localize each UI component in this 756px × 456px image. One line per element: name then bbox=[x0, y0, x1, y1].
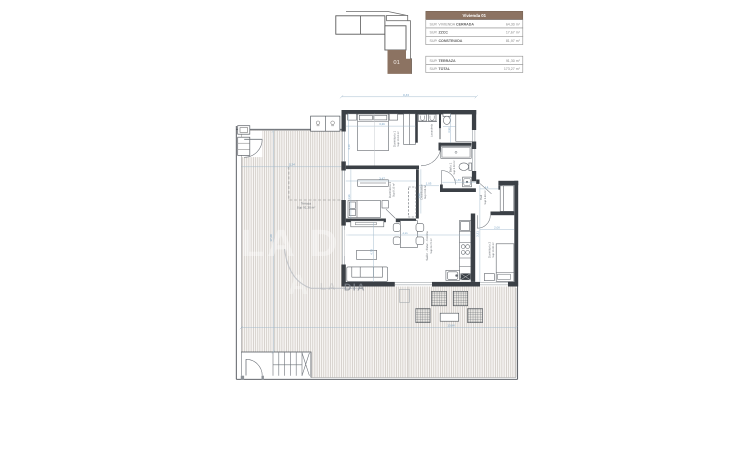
svg-text:4,78: 4,78 bbox=[369, 249, 373, 255]
svg-text:1,40: 1,40 bbox=[455, 178, 461, 182]
svg-text:17,67 m²: 17,67 m² bbox=[506, 31, 521, 35]
svg-text:173,27 m²: 173,27 m² bbox=[504, 67, 521, 71]
svg-text:A: A bbox=[288, 269, 310, 300]
svg-text:2,00: 2,00 bbox=[494, 225, 500, 229]
svg-text:LA: LA bbox=[320, 282, 337, 293]
svg-text:Salón - Estar - Cocina: Salón - Estar - Cocina bbox=[425, 231, 429, 261]
svg-text:13,94: 13,94 bbox=[447, 324, 455, 328]
svg-text:Sup 8.15 m²: Sup 8.15 m² bbox=[393, 183, 396, 197]
svg-text:8,43: 8,43 bbox=[403, 93, 409, 97]
svg-text:Sup 10.30 m²: Sup 10.30 m² bbox=[492, 242, 495, 258]
svg-text:1,4: 1,4 bbox=[485, 186, 489, 189]
svg-text:Sup 3.96 m²: Sup 3.96 m² bbox=[424, 185, 427, 199]
svg-text:3,47: 3,47 bbox=[379, 177, 385, 181]
svg-text:Sup 91.30 m²: Sup 91.30 m² bbox=[297, 206, 316, 210]
svg-text:Vivienda 01: Vivienda 01 bbox=[463, 13, 487, 18]
svg-text:4,16: 4,16 bbox=[402, 232, 408, 235]
svg-text:Sup 3.46 m²: Sup 3.46 m² bbox=[484, 190, 487, 204]
svg-text:64,30 m²: 64,30 m² bbox=[506, 22, 521, 26]
svg-text:DIA: DIA bbox=[344, 282, 366, 293]
svg-text:Lavandería: Lavandería bbox=[431, 123, 434, 137]
svg-text:5,34: 5,34 bbox=[289, 163, 295, 167]
svg-text:2,96: 2,96 bbox=[348, 194, 351, 200]
svg-text:Sup 10.16 m²: Sup 10.16 m² bbox=[397, 131, 400, 147]
svg-text:Hall: Hall bbox=[479, 195, 483, 201]
svg-text:3,26: 3,26 bbox=[379, 122, 385, 126]
svg-text:Dormitorio 2: Dormitorio 2 bbox=[487, 242, 491, 259]
svg-text:01: 01 bbox=[393, 59, 399, 66]
svg-text:3,21: 3,21 bbox=[476, 231, 480, 237]
svg-text:Sup 3.50 m²: Sup 3.50 m² bbox=[453, 160, 456, 174]
svg-text:SUP. VIVIENDA CERRADA: SUP. VIVIENDA CERRADA bbox=[430, 22, 475, 26]
svg-text:81,97 m²: 81,97 m² bbox=[506, 39, 521, 43]
svg-text:91,30 m²: 91,30 m² bbox=[506, 59, 521, 63]
svg-text:SUP. CONSTRUIDA: SUP. CONSTRUIDA bbox=[430, 39, 463, 43]
svg-text:Dormitorio 1: Dormitorio 1 bbox=[392, 131, 396, 148]
svg-text:SUP. ZZCC: SUP. ZZCC bbox=[430, 31, 449, 35]
svg-text:SUP. TERRAZA: SUP. TERRAZA bbox=[430, 59, 457, 63]
svg-text:Sup 24.70 m²: Sup 24.70 m² bbox=[430, 238, 433, 254]
svg-text:3,10: 3,10 bbox=[348, 144, 351, 150]
svg-text:Baño 1: Baño 1 bbox=[448, 162, 452, 172]
svg-text:Dormitorio 3: Dormitorio 3 bbox=[388, 182, 392, 199]
svg-text:LA DI: LA DI bbox=[241, 223, 354, 265]
svg-text:SUP. TOTAL: SUP. TOTAL bbox=[430, 67, 451, 71]
svg-text:Distribuidor: Distribuidor bbox=[419, 184, 423, 199]
svg-text:1,05: 1,05 bbox=[426, 182, 432, 186]
svg-text:0,90: 0,90 bbox=[448, 127, 451, 133]
